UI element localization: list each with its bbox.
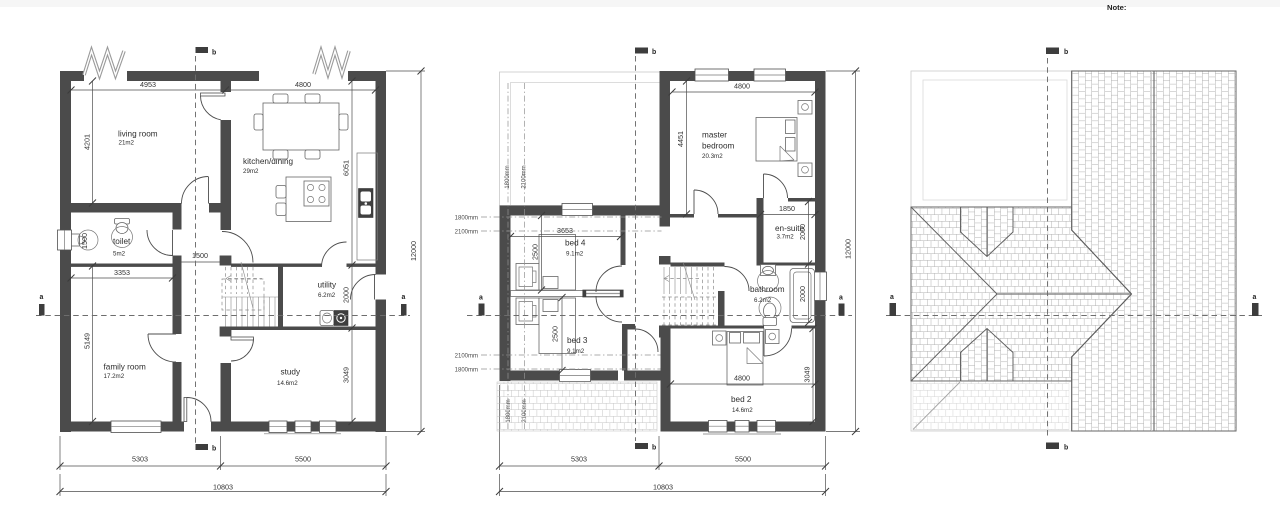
svg-text:1500: 1500 xyxy=(80,233,89,249)
svg-text:a: a xyxy=(839,295,843,302)
svg-text:b: b xyxy=(212,50,216,57)
svg-text:2100mm: 2100mm xyxy=(455,230,478,236)
svg-text:3049: 3049 xyxy=(342,367,351,383)
svg-text:20.3m2: 20.3m2 xyxy=(702,153,723,160)
svg-text:2100mm: 2100mm xyxy=(522,165,528,188)
svg-text:4451: 4451 xyxy=(676,131,685,147)
svg-text:4800: 4800 xyxy=(295,80,311,89)
svg-text:5303: 5303 xyxy=(132,455,148,464)
svg-text:4800: 4800 xyxy=(734,82,750,91)
svg-text:14.6m2: 14.6m2 xyxy=(732,407,753,414)
svg-text:master: master xyxy=(702,131,727,140)
svg-text:21m2: 21m2 xyxy=(119,140,135,147)
svg-text:3353: 3353 xyxy=(114,268,130,277)
svg-text:10803: 10803 xyxy=(653,483,673,492)
svg-text:6.2m2: 6.2m2 xyxy=(754,297,772,304)
svg-text:14.6m2: 14.6m2 xyxy=(277,380,298,387)
svg-text:2000: 2000 xyxy=(798,224,807,240)
svg-text:2500: 2500 xyxy=(551,326,560,342)
svg-text:b: b xyxy=(1064,445,1068,452)
svg-text:utility: utility xyxy=(318,281,338,290)
svg-text:10803: 10803 xyxy=(213,483,233,492)
svg-text:bedroom: bedroom xyxy=(702,142,734,151)
svg-text:2100mm: 2100mm xyxy=(455,354,478,360)
svg-text:b: b xyxy=(1064,49,1068,56)
svg-text:1800mm: 1800mm xyxy=(505,165,511,188)
svg-text:bed 4: bed 4 xyxy=(565,239,586,248)
svg-text:b: b xyxy=(212,446,216,453)
svg-text:a: a xyxy=(890,294,894,301)
svg-text:6051: 6051 xyxy=(342,160,351,176)
svg-text:b: b xyxy=(652,49,656,56)
svg-text:family room: family room xyxy=(104,363,146,372)
svg-text:1850: 1850 xyxy=(779,204,795,213)
svg-text:1500: 1500 xyxy=(192,251,208,260)
svg-text:17.2m2: 17.2m2 xyxy=(104,373,125,380)
svg-text:5500: 5500 xyxy=(735,455,751,464)
svg-text:5500: 5500 xyxy=(295,455,311,464)
svg-text:3653: 3653 xyxy=(557,226,573,235)
svg-text:5149: 5149 xyxy=(83,333,92,349)
svg-text:b: b xyxy=(652,445,656,452)
svg-text:29m2: 29m2 xyxy=(243,168,259,175)
svg-text:5303: 5303 xyxy=(571,455,587,464)
svg-text:study: study xyxy=(281,368,301,377)
svg-text:bed 2: bed 2 xyxy=(731,395,752,404)
svg-text:living room: living room xyxy=(118,130,158,139)
svg-text:a: a xyxy=(479,295,483,302)
svg-text:Note:: Note: xyxy=(1107,3,1126,12)
svg-text:2500: 2500 xyxy=(531,244,540,260)
svg-text:3049: 3049 xyxy=(803,367,812,383)
svg-text:1800mm: 1800mm xyxy=(455,368,478,374)
svg-text:1800mm: 1800mm xyxy=(455,216,478,222)
svg-text:9.1m2: 9.1m2 xyxy=(566,251,584,258)
svg-text:a: a xyxy=(40,294,44,301)
svg-text:2000: 2000 xyxy=(798,286,807,302)
svg-text:3.7m2: 3.7m2 xyxy=(777,234,795,241)
svg-text:9.1m2: 9.1m2 xyxy=(567,348,585,355)
svg-text:a: a xyxy=(402,294,406,301)
svg-text:a: a xyxy=(1253,294,1257,301)
svg-text:bed 3: bed 3 xyxy=(567,336,588,345)
svg-text:toilet: toilet xyxy=(113,237,131,246)
svg-text:4800: 4800 xyxy=(734,374,750,383)
svg-text:12000: 12000 xyxy=(409,241,418,261)
svg-text:bathroom: bathroom xyxy=(750,285,785,294)
svg-text:4953: 4953 xyxy=(140,80,156,89)
svg-text:2000: 2000 xyxy=(342,287,351,303)
svg-text:6.2m2: 6.2m2 xyxy=(318,292,336,299)
svg-text:12000: 12000 xyxy=(844,239,853,259)
svg-text:5m2: 5m2 xyxy=(113,251,126,258)
svg-text:4201: 4201 xyxy=(83,134,92,150)
